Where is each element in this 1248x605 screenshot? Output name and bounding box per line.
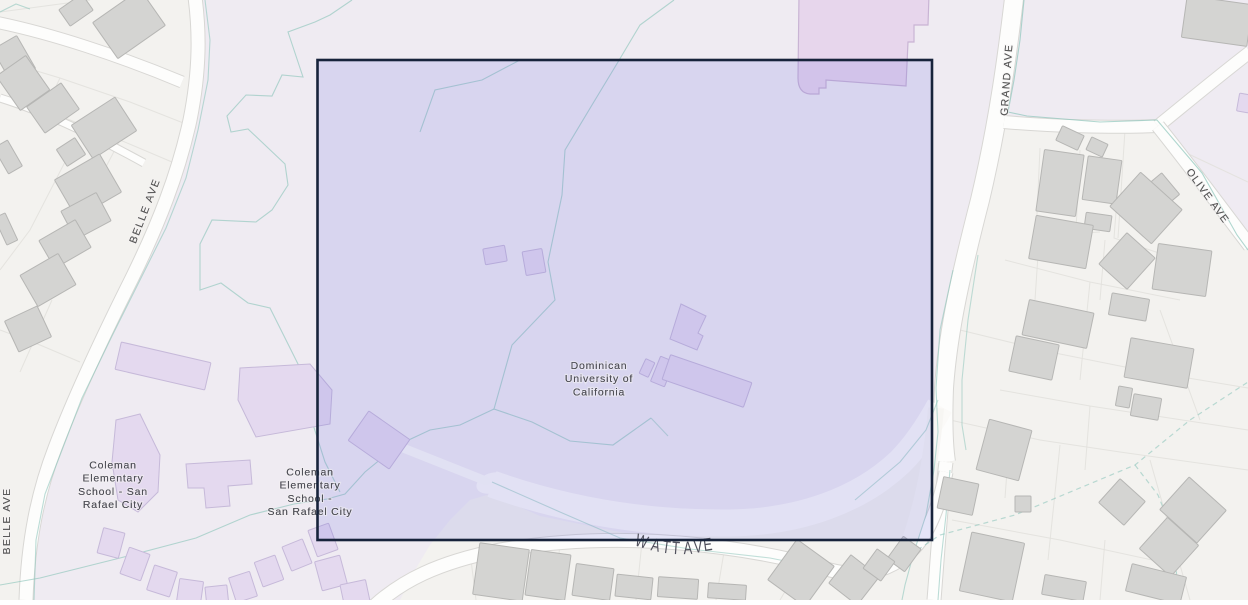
svg-text:Elementary: Elementary [82, 473, 143, 485]
svg-text:Coleman: Coleman [89, 460, 137, 472]
svg-text:Elementary: Elementary [279, 480, 340, 492]
svg-text:School - San: School - San [78, 486, 148, 498]
svg-text:A: A [683, 539, 693, 559]
svg-text:School -: School - [288, 493, 333, 505]
svg-text:Rafael City: Rafael City [83, 499, 143, 511]
svg-text:California: California [573, 386, 625, 398]
svg-text:Coleman: Coleman [286, 467, 334, 479]
svg-text:San Rafael City: San Rafael City [268, 506, 353, 518]
svg-text:BELLE AVE: BELLE AVE [1, 488, 13, 555]
svg-text:Dominican: Dominican [571, 360, 628, 372]
svg-text:University of: University of [565, 373, 633, 385]
